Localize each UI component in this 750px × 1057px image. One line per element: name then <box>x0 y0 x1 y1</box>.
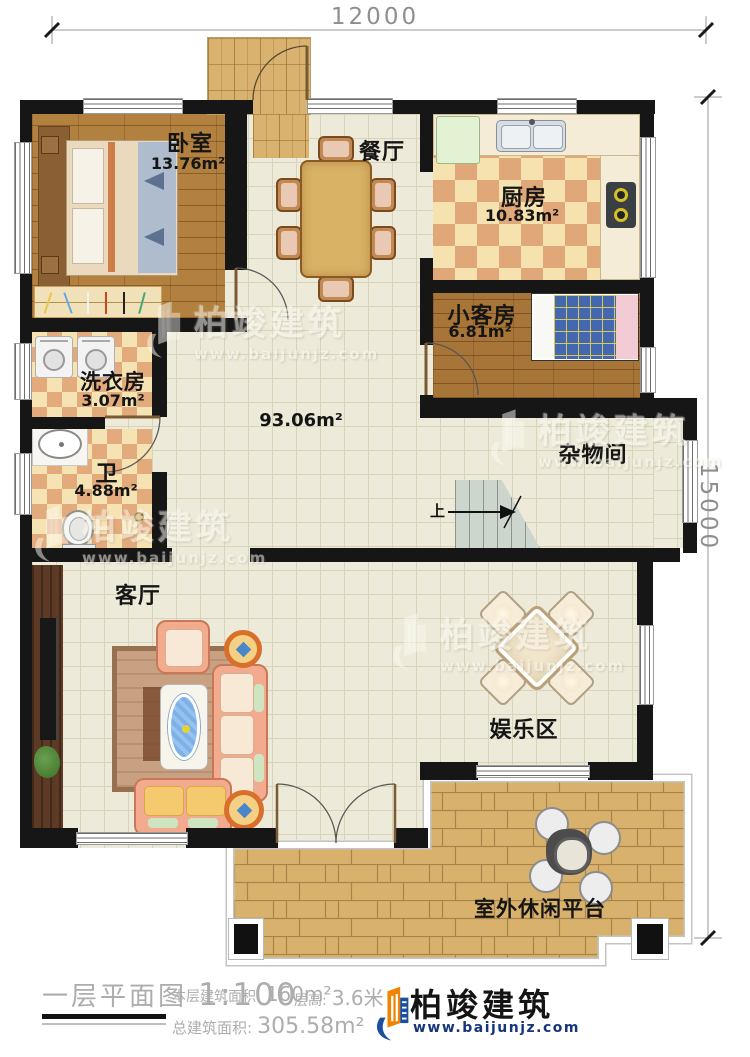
total-area-block: 总建筑面积: 305.58m² <box>172 1014 364 1039</box>
room-area-kitchen: 10.83m² <box>485 206 559 225</box>
guest-pillow <box>534 296 555 358</box>
dining-chair <box>370 226 396 260</box>
dimension-top-label: 12000 <box>331 4 419 30</box>
company-logo-icon <box>372 984 412 1044</box>
sofa-pillow <box>148 818 178 828</box>
window <box>14 343 32 400</box>
wall <box>683 418 697 440</box>
company-logo <box>372 984 412 1044</box>
window <box>639 625 654 705</box>
kitchen-sink <box>496 120 566 152</box>
side-table <box>224 630 262 668</box>
dining-chair <box>318 276 354 302</box>
sofa-pillow <box>254 754 264 782</box>
plan-title: 一层平面图 <box>42 982 187 1012</box>
wall <box>637 562 653 625</box>
window <box>83 98 183 114</box>
tray <box>168 694 200 760</box>
dining-chair <box>276 178 302 212</box>
wall <box>420 280 654 293</box>
side-table-deco <box>237 803 253 819</box>
wardrobe <box>34 286 162 318</box>
toilet <box>62 510 94 546</box>
bed-post <box>41 136 59 154</box>
storage-tile-floor <box>653 418 683 548</box>
washer-panel <box>82 340 110 342</box>
plant <box>34 746 60 778</box>
wall <box>250 548 680 562</box>
guest-bed <box>531 293 639 361</box>
wall <box>152 332 167 417</box>
burner <box>614 208 628 222</box>
patio-chair <box>587 821 621 855</box>
patio-table <box>546 829 592 875</box>
dim-tick <box>45 23 59 37</box>
wall <box>20 828 78 848</box>
total-area-label: 总建筑面积: <box>172 1019 252 1037</box>
total-area-value: 305.58m² <box>257 1014 364 1039</box>
room-area-bedroom: 13.76m² <box>151 154 225 173</box>
wall <box>393 100 497 114</box>
stair-up-label: 上 <box>430 500 445 521</box>
floor-drain <box>134 512 144 522</box>
window <box>476 765 590 778</box>
hanger <box>123 292 125 314</box>
window <box>14 142 32 274</box>
bath-sink <box>38 429 82 459</box>
window <box>497 98 577 114</box>
room-label-platform: 室外休闲平台 <box>474 893 606 923</box>
washer-door <box>43 349 65 371</box>
wall <box>32 417 105 429</box>
patio-table-set <box>531 803 621 903</box>
room-area-guest: 6.81m² <box>448 322 511 341</box>
column-pier <box>631 918 669 960</box>
burner <box>614 188 628 202</box>
wall <box>577 100 655 114</box>
sofa-cushion <box>144 786 184 816</box>
wall <box>225 114 247 270</box>
blanket-stripe <box>108 142 115 272</box>
column-pier <box>228 918 264 960</box>
dining-chair <box>318 136 354 162</box>
pillow <box>72 208 104 264</box>
floor-plan-canvas: 12000 15000 卧室 13.76m² 餐厅 厨房 10.83m² 小客房… <box>0 0 750 1057</box>
dimension-right-label: 15000 <box>695 463 721 551</box>
stove <box>606 182 636 228</box>
title-underline <box>42 1014 166 1019</box>
dining-chair <box>276 226 302 260</box>
washing-machine <box>35 336 73 378</box>
hanger <box>44 292 53 314</box>
wall <box>186 828 278 848</box>
side-table <box>224 790 264 830</box>
patio-table-top <box>554 837 590 873</box>
wall <box>20 318 247 332</box>
bed-post <box>41 256 59 274</box>
room-label-dining: 餐厅 <box>359 134 405 166</box>
drain <box>59 442 64 447</box>
fridge <box>436 116 480 164</box>
wall <box>20 272 32 343</box>
room-label-living: 客厅 <box>115 578 161 610</box>
wall <box>420 398 697 418</box>
dining-chair <box>370 178 396 212</box>
title-underline-2 <box>42 1023 166 1025</box>
plaid-blanket <box>554 295 616 359</box>
wall <box>20 100 32 146</box>
wall <box>20 548 172 562</box>
dining-table <box>300 160 372 278</box>
hall-area-label: 93.06m² <box>259 410 343 431</box>
sofa-pillow <box>254 684 264 712</box>
floor-area-label: 本层建筑面积: <box>172 989 261 1005</box>
dim-tick <box>699 23 713 37</box>
room-label-entertainment: 娱乐区 <box>489 712 558 744</box>
sink-basin <box>501 125 531 149</box>
pillow <box>72 148 104 204</box>
window <box>14 453 32 515</box>
toilet-bowl <box>69 517 89 541</box>
dim-tick <box>701 90 715 104</box>
wall <box>420 114 433 172</box>
entry-inside-strip <box>253 114 309 158</box>
wall <box>20 565 32 848</box>
side-table-deco <box>236 642 252 658</box>
wall <box>637 705 653 780</box>
armchair <box>156 620 210 674</box>
sofa-pillow <box>188 818 218 828</box>
wall <box>183 100 253 114</box>
wall <box>20 400 32 455</box>
faucet <box>529 119 535 125</box>
wall <box>640 114 654 137</box>
room-area-laundry: 3.07m² <box>81 391 144 410</box>
room-label-storage: 杂物间 <box>558 437 627 469</box>
wall <box>420 258 433 293</box>
floor-height-label: 层高: <box>294 993 327 1009</box>
hanger <box>138 292 146 314</box>
dim-tick <box>701 931 715 945</box>
wall <box>420 293 433 345</box>
guest-blanket <box>616 295 638 359</box>
hanger <box>63 292 72 313</box>
tv <box>40 618 58 740</box>
sink-basin <box>533 125 563 149</box>
game-table-set <box>489 600 585 696</box>
coffee-table <box>160 684 208 770</box>
company-website: www.baijunjz.com <box>413 1020 580 1036</box>
wall <box>420 762 478 780</box>
floor-height-block: 层高: 3.6米 <box>294 982 384 1011</box>
wall <box>152 472 167 550</box>
wall <box>394 828 428 848</box>
sofa-cushion <box>186 786 226 816</box>
window <box>76 832 188 845</box>
washer-panel <box>40 340 68 342</box>
hanger <box>105 292 107 314</box>
hanger <box>87 292 89 314</box>
window <box>640 137 656 278</box>
fruit <box>182 725 190 733</box>
window <box>307 98 393 114</box>
window <box>640 347 656 393</box>
room-area-bathroom: 4.88m² <box>74 481 137 500</box>
